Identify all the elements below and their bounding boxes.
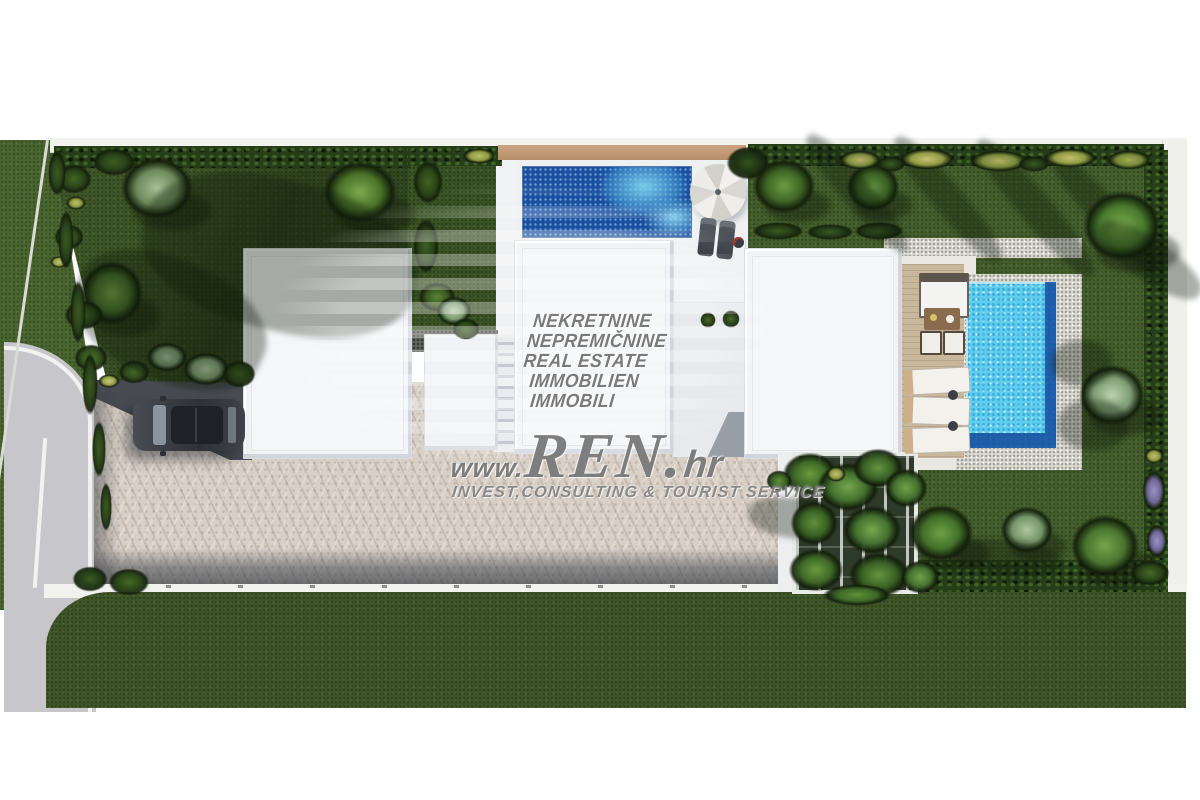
gravel-strip bbox=[884, 238, 1082, 258]
bottom-lawn bbox=[46, 592, 1186, 708]
sun-lounger bbox=[904, 426, 971, 454]
watermark-text: IMMOBILIEN bbox=[528, 371, 640, 393]
car-mirror bbox=[160, 396, 166, 401]
deck-chair bbox=[920, 331, 942, 355]
watermark-brand-name: REN. bbox=[522, 424, 688, 488]
deck-chair bbox=[943, 331, 965, 355]
watermark-text: IMMOBILI bbox=[529, 391, 616, 413]
watermark-text: NEKRETNINE bbox=[532, 311, 653, 333]
side-table bbox=[948, 421, 958, 431]
parasol bbox=[690, 164, 746, 220]
deck-table bbox=[924, 308, 960, 330]
driveway-shadow bbox=[94, 392, 120, 592]
sun-lounger bbox=[903, 366, 970, 395]
side-table bbox=[948, 390, 958, 400]
car-roof bbox=[171, 406, 223, 444]
pergola bbox=[792, 452, 918, 594]
hedge bbox=[54, 146, 410, 168]
hedge bbox=[748, 144, 1164, 166]
car-windshield bbox=[153, 405, 166, 445]
watermark-text: REAL ESTATE bbox=[522, 351, 648, 373]
car-mirror bbox=[160, 451, 166, 456]
tan-wall bbox=[498, 145, 746, 160]
aerial-render: NEKRETNINE NEPREMIČNINE REAL ESTATE IMMO… bbox=[0, 0, 1200, 800]
sun-lounger bbox=[904, 396, 971, 426]
watermark-text: NEPREMIČNINE bbox=[526, 331, 668, 353]
hedge bbox=[900, 560, 1166, 592]
watermark-url-suffix: hr bbox=[682, 444, 725, 487]
watermark-url-prefix: www. bbox=[449, 453, 526, 484]
hedge bbox=[1144, 150, 1168, 592]
watermark-brand: www.REN.hr bbox=[449, 424, 727, 488]
car-rear-window bbox=[228, 407, 236, 443]
watermark-tagline: INVEST,CONSULTING & TOURIST SERVICE bbox=[451, 484, 826, 502]
swimming-pool-turquoise bbox=[966, 282, 1056, 448]
parked-car bbox=[133, 399, 245, 451]
hedge bbox=[408, 146, 502, 166]
